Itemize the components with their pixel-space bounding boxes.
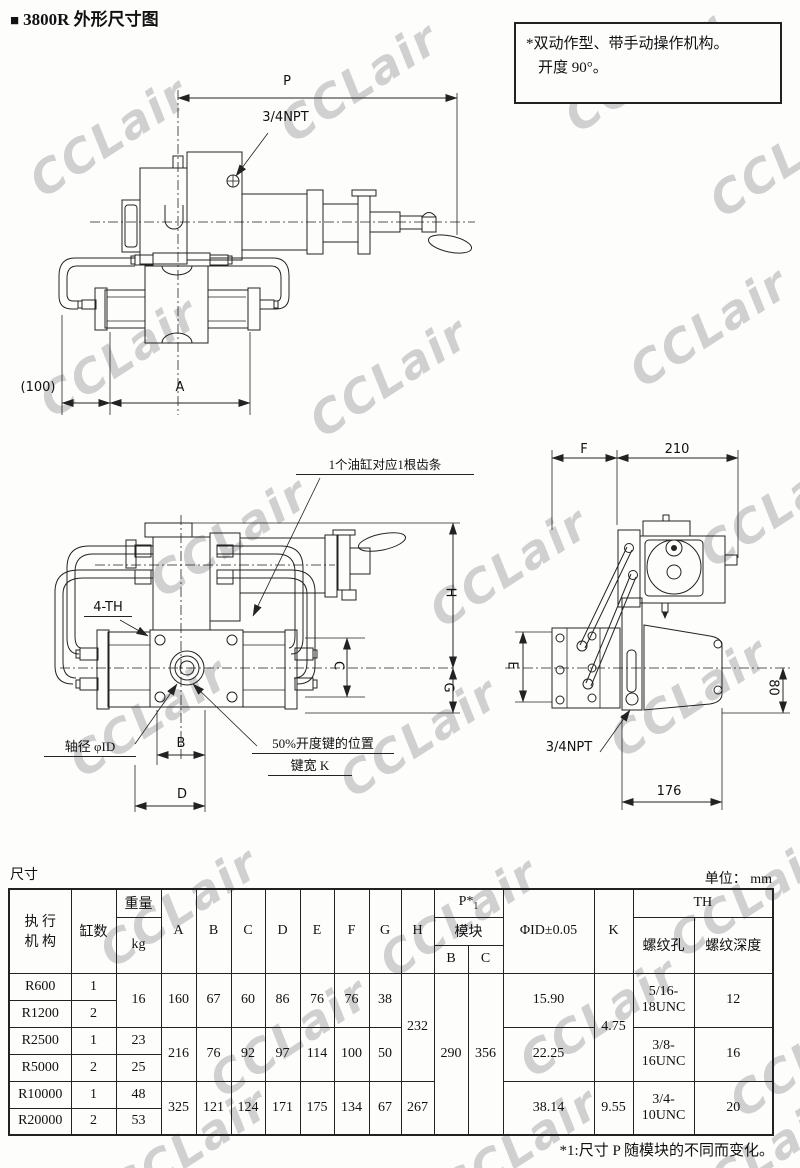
cell-model: R2500 <box>9 1027 71 1054</box>
dim-label-h: H <box>443 583 458 603</box>
cell-c: 60 <box>231 973 265 1027</box>
header-module-b: B <box>434 945 468 973</box>
cell-p-c: 356 <box>468 973 503 1135</box>
cell-cylinders: 2 <box>71 1054 116 1081</box>
table-row: R10000 1 48 325 121 124 171 175 134 67 2… <box>9 1081 773 1108</box>
cell-f: 76 <box>334 973 369 1027</box>
cell-weight: 48 <box>116 1081 161 1108</box>
dim-label-210: 210 <box>653 442 701 457</box>
cell-b: 121 <box>196 1081 231 1135</box>
cell-a: 325 <box>161 1081 196 1135</box>
cell-a: 160 <box>161 973 196 1027</box>
dim-label-c: C <box>331 656 346 676</box>
title-text: 3800R 外形尺寸图 <box>23 10 159 29</box>
cell-h: 267 <box>401 1081 434 1135</box>
header-c: C <box>231 889 265 973</box>
dim-label-100: (100) <box>12 380 64 395</box>
dim-label-a: A <box>158 380 202 395</box>
cell-model: R10000 <box>9 1081 71 1108</box>
catalog-page: CCLair CCLair CCLair CCLair CCLair CCLai… <box>0 0 800 1168</box>
page-title: ■3800R 外形尺寸图 <box>10 5 159 30</box>
cell-e: 175 <box>300 1081 334 1135</box>
header-module: 模块 <box>434 917 503 945</box>
cell-h: 232 <box>401 973 434 1081</box>
dimension-table: 执 行机 构 缸数 重量 A B C D E F G H P*1 ΦID±0.0… <box>8 888 774 1136</box>
cell-model: R20000 <box>9 1108 71 1135</box>
front-view-drawing <box>35 440 470 830</box>
table-caption: 尺寸 <box>10 864 38 884</box>
header-d: D <box>265 889 300 973</box>
unit-label: 单位： mm <box>600 868 772 888</box>
header-p-sub: 1 <box>473 901 478 912</box>
table-row: R600 1 16 160 67 60 86 76 76 38 232 290 … <box>9 973 773 1000</box>
cell-thread-depth: 16 <box>694 1027 773 1081</box>
note-line-1: *双动作型、带手动操作机构。 <box>526 32 780 56</box>
dim-label-80: 80 <box>766 678 781 698</box>
cell-c: 124 <box>231 1081 265 1135</box>
cell-d: 171 <box>265 1081 300 1135</box>
cell-weight: 53 <box>116 1108 161 1135</box>
header-g: G <box>369 889 401 973</box>
cell-a: 216 <box>161 1027 196 1081</box>
title-bullet-icon: ■ <box>10 13 19 29</box>
rack-note: 1个油缸对应1根齿条 <box>296 454 474 475</box>
cell-cylinders: 1 <box>71 973 116 1000</box>
header-p: P*1 <box>434 889 503 917</box>
thread-hole-value: 5/16-18UNC <box>641 984 687 1016</box>
dim-label-d: D <box>163 787 201 802</box>
top-view-drawing <box>15 85 510 425</box>
header-a: A <box>161 889 196 973</box>
cell-cylinders: 1 <box>71 1027 116 1054</box>
shaft-diameter-label: 轴径 φID <box>44 736 136 757</box>
table-row: R2500 1 23 216 76 92 97 114 100 50 22.25… <box>9 1027 773 1054</box>
dim-label-176: 176 <box>643 784 695 799</box>
cell-weight: 25 <box>116 1054 161 1081</box>
port-label-top: 3/4NPT <box>243 110 328 125</box>
header-cylinders: 缸数 <box>71 889 116 973</box>
header-b: B <box>196 889 231 973</box>
cell-weight: 16 <box>116 973 161 1027</box>
cell-model: R5000 <box>9 1054 71 1081</box>
cell-b: 67 <box>196 973 231 1027</box>
dim-label-g: G <box>441 678 456 698</box>
header-thread-depth: 螺纹深度 <box>694 917 773 973</box>
cell-g: 50 <box>369 1027 401 1081</box>
dim-label-p: P <box>262 74 312 89</box>
header-f: F <box>334 889 369 973</box>
cell-cylinders: 1 <box>71 1081 116 1108</box>
cell-c: 92 <box>231 1027 265 1081</box>
cell-d: 97 <box>265 1027 300 1081</box>
header-actuator-line2: 机 构 <box>25 935 57 950</box>
header-p-base: P* <box>459 894 474 909</box>
cell-cylinders: 2 <box>71 1000 116 1027</box>
header-actuator-line1: 执 行 <box>25 915 57 930</box>
th-callout: 4-TH <box>84 600 132 617</box>
header-th: TH <box>633 889 773 917</box>
cell-model: R1200 <box>9 1000 71 1027</box>
cell-k: 9.55 <box>594 1081 633 1135</box>
thread-hole-value: 3/8-16UNC <box>641 1038 687 1070</box>
header-phi-id: ΦID±0.05 <box>503 889 594 973</box>
cell-thread-depth: 12 <box>694 973 773 1027</box>
cell-thread-hole: 5/16-18UNC <box>633 973 694 1027</box>
cell-b: 76 <box>196 1027 231 1081</box>
cell-thread-depth: 20 <box>694 1081 773 1135</box>
header-module-c: C <box>468 945 503 973</box>
header-thread-hole: 螺纹孔 <box>633 917 694 973</box>
note-box: *双动作型、带手动操作机构。 开度 90°。 <box>514 22 782 104</box>
header-h: H <box>401 889 434 973</box>
header-weight-unit: kg <box>116 917 161 973</box>
header-e: E <box>300 889 334 973</box>
cell-thread-hole: 3/8-16UNC <box>633 1027 694 1081</box>
port-label-side: 3/4NPT <box>530 740 608 755</box>
dim-label-f: F <box>568 442 600 457</box>
cell-e: 76 <box>300 973 334 1027</box>
cell-k: 4.75 <box>594 973 633 1081</box>
cell-phi-id: 22.25 <box>503 1027 594 1081</box>
header-weight: 重量 <box>116 889 161 917</box>
cell-weight: 23 <box>116 1027 161 1054</box>
key-width-note: 键宽 K <box>268 755 352 776</box>
cell-phi-id: 38.14 <box>503 1081 594 1135</box>
header-actuator: 执 行机 构 <box>9 889 71 973</box>
cell-e: 114 <box>300 1027 334 1081</box>
cell-model: R600 <box>9 973 71 1000</box>
side-view-drawing <box>500 440 800 815</box>
cell-f: 134 <box>334 1081 369 1135</box>
cell-cylinders: 2 <box>71 1108 116 1135</box>
cell-d: 86 <box>265 973 300 1027</box>
watermark: CCLair <box>620 256 799 398</box>
dim-label-e: E <box>505 656 520 676</box>
cell-f: 100 <box>334 1027 369 1081</box>
thread-hole-value: 3/4-10UNC <box>641 1092 687 1124</box>
note-line-2: 开度 90°。 <box>526 56 780 80</box>
cell-p-b: 290 <box>434 973 468 1135</box>
dim-label-b: B <box>162 736 200 751</box>
cell-phi-id: 15.90 <box>503 973 594 1027</box>
table-footnote: *1:尺寸 P 随模块的不同而变化。 <box>400 1139 774 1160</box>
cell-g: 67 <box>369 1081 401 1135</box>
cell-g: 38 <box>369 973 401 1027</box>
key-position-note: 50%开度键的位置 <box>252 733 394 754</box>
watermark: CCLair <box>700 86 800 228</box>
cell-thread-hole: 3/4-10UNC <box>633 1081 694 1135</box>
header-k: K <box>594 889 633 973</box>
